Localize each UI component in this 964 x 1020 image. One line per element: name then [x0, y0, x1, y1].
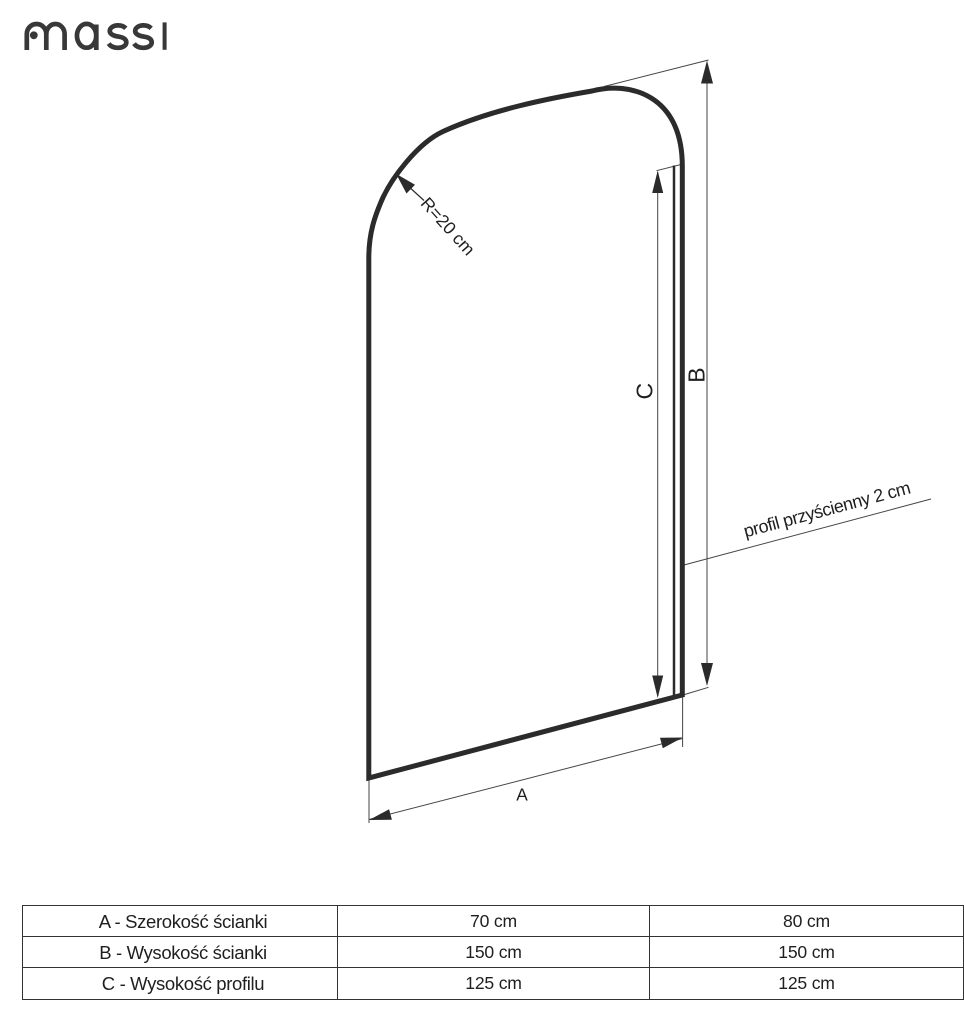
svg-text:R=20 cm: R=20 cm	[417, 193, 479, 259]
svg-text:profil przyścienny 2 cm: profil przyścienny 2 cm	[741, 478, 912, 542]
svg-text:C: C	[632, 383, 658, 400]
svg-text:A: A	[516, 784, 528, 804]
svg-text:B: B	[684, 367, 710, 382]
